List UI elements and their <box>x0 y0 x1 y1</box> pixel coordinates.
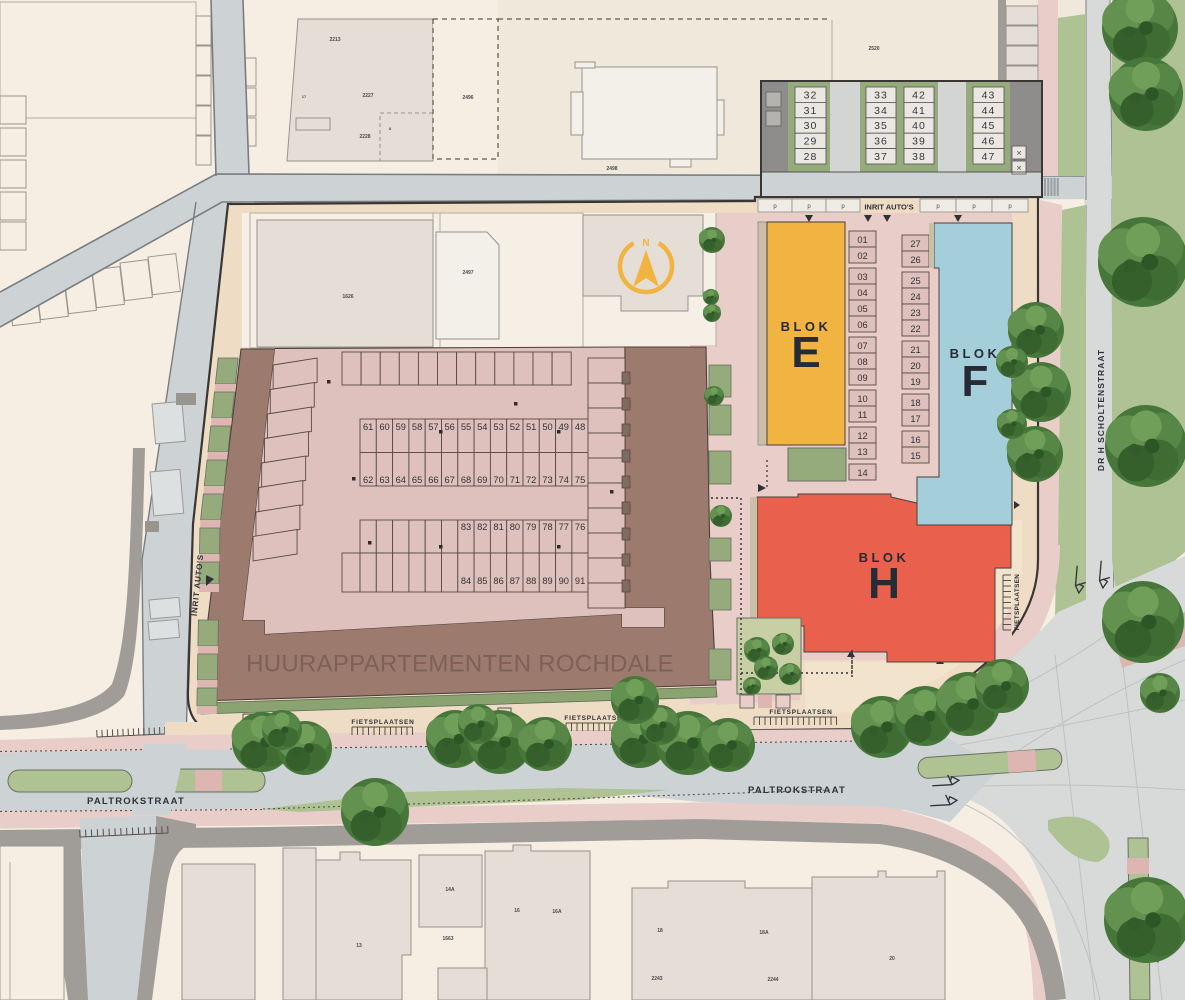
svg-text:16A: 16A <box>552 909 562 915</box>
svg-text:54: 54 <box>477 422 487 432</box>
svg-text:38: 38 <box>912 151 926 163</box>
svg-text:DR H SCHOLTENSTRAAT: DR H SCHOLTENSTRAAT <box>1096 349 1106 471</box>
svg-text:35: 35 <box>874 120 888 132</box>
svg-text:33: 33 <box>874 89 888 101</box>
svg-text:85: 85 <box>477 576 487 586</box>
svg-text:2497: 2497 <box>462 270 473 276</box>
svg-text:2244: 2244 <box>767 977 778 983</box>
svg-text:08: 08 <box>857 357 867 367</box>
svg-text:80: 80 <box>510 522 520 532</box>
svg-text:PALTROKSTRAAT: PALTROKSTRAAT <box>87 796 185 807</box>
svg-text:16: 16 <box>910 435 920 445</box>
svg-text:09: 09 <box>857 373 867 383</box>
svg-text:11: 11 <box>858 410 868 420</box>
svg-text:76: 76 <box>575 522 585 532</box>
svg-text:17: 17 <box>302 94 307 99</box>
svg-text:47: 47 <box>982 151 996 163</box>
svg-text:75: 75 <box>575 475 585 485</box>
svg-text:27: 27 <box>910 239 920 249</box>
svg-text:26: 26 <box>910 255 920 265</box>
svg-text:62: 62 <box>363 475 373 485</box>
svg-text:84: 84 <box>461 576 471 586</box>
svg-text:1626: 1626 <box>342 294 353 300</box>
svg-text:73: 73 <box>542 475 552 485</box>
svg-text:29: 29 <box>804 136 818 148</box>
svg-text:42: 42 <box>912 89 926 101</box>
svg-text:13: 13 <box>356 943 362 949</box>
svg-text:12: 12 <box>857 431 867 441</box>
svg-text:1663: 1663 <box>442 936 453 942</box>
svg-text:72: 72 <box>526 475 536 485</box>
svg-text:41: 41 <box>912 105 926 117</box>
svg-text:23: 23 <box>910 308 920 318</box>
svg-text:34: 34 <box>874 105 888 117</box>
svg-text:91: 91 <box>575 576 585 586</box>
svg-text:56: 56 <box>445 422 455 432</box>
svg-text:86: 86 <box>493 576 503 586</box>
svg-text:45: 45 <box>982 120 996 132</box>
svg-text:2243: 2243 <box>651 976 662 982</box>
svg-text:10: 10 <box>857 394 867 404</box>
svg-text:39: 39 <box>912 136 926 148</box>
svg-text:17: 17 <box>910 414 920 424</box>
svg-text:HUURAPPARTEMENTEN ROCHDALE: HUURAPPARTEMENTEN ROCHDALE <box>246 651 674 678</box>
svg-text:2213: 2213 <box>329 37 340 43</box>
svg-text:05: 05 <box>857 304 867 314</box>
svg-text:90: 90 <box>559 576 569 586</box>
svg-text:21: 21 <box>910 345 920 355</box>
svg-text:43: 43 <box>982 89 996 101</box>
svg-text:87: 87 <box>510 576 520 586</box>
svg-text:79: 79 <box>526 522 536 532</box>
svg-text:2496: 2496 <box>462 95 473 101</box>
svg-text:89: 89 <box>542 576 552 586</box>
svg-text:64: 64 <box>396 475 406 485</box>
svg-text:F: F <box>962 357 989 406</box>
svg-text:24: 24 <box>910 292 920 302</box>
svg-text:61: 61 <box>363 422 373 432</box>
svg-text:2498: 2498 <box>606 166 617 172</box>
svg-text:2228: 2228 <box>359 134 370 140</box>
svg-text:18: 18 <box>910 398 920 408</box>
svg-text:68: 68 <box>461 475 471 485</box>
svg-text:52: 52 <box>510 422 520 432</box>
svg-text:07: 07 <box>857 341 867 351</box>
svg-text:66: 66 <box>428 475 438 485</box>
svg-text:31: 31 <box>804 105 818 117</box>
svg-text:H: H <box>868 559 900 608</box>
svg-text:06: 06 <box>857 320 867 330</box>
svg-text:FIETSPLAATSEN: FIETSPLAATSEN <box>351 719 414 726</box>
svg-text:18: 18 <box>657 928 663 934</box>
svg-text:44: 44 <box>982 105 996 117</box>
svg-text:57: 57 <box>428 422 438 432</box>
svg-text:N: N <box>642 238 649 249</box>
svg-text:81: 81 <box>493 522 503 532</box>
svg-text:PALTROKSTRAAT: PALTROKSTRAAT <box>748 785 846 796</box>
svg-text:FIETSPLAATSEN: FIETSPLAATSEN <box>769 709 832 716</box>
svg-text:32: 32 <box>804 89 818 101</box>
svg-text:15: 15 <box>910 451 920 461</box>
svg-text:16: 16 <box>514 908 520 914</box>
svg-text:22: 22 <box>910 324 920 334</box>
svg-text:2520: 2520 <box>868 46 879 52</box>
svg-text:03: 03 <box>857 272 867 282</box>
svg-text:74: 74 <box>559 475 569 485</box>
svg-text:30: 30 <box>804 120 818 132</box>
svg-text:20: 20 <box>889 956 895 962</box>
svg-text:46: 46 <box>982 136 996 148</box>
svg-text:01: 01 <box>857 235 867 245</box>
svg-text:14: 14 <box>857 468 867 478</box>
svg-text:83: 83 <box>461 522 471 532</box>
svg-text:25: 25 <box>910 276 920 286</box>
svg-text:04: 04 <box>857 288 867 298</box>
svg-text:28: 28 <box>804 151 818 163</box>
svg-text:FIETSPLAATSEN: FIETSPLAATSEN <box>1014 574 1021 631</box>
svg-text:✕: ✕ <box>1016 166 1022 173</box>
svg-text:36: 36 <box>874 136 888 148</box>
svg-text:67: 67 <box>445 475 455 485</box>
svg-text:48: 48 <box>575 422 585 432</box>
svg-text:82: 82 <box>477 522 487 532</box>
svg-text:E: E <box>791 328 820 377</box>
svg-text:02: 02 <box>857 251 867 261</box>
svg-text:53: 53 <box>493 422 503 432</box>
svg-text:40: 40 <box>912 120 926 132</box>
svg-text:63: 63 <box>379 475 389 485</box>
svg-text:2227: 2227 <box>362 93 373 99</box>
svg-text:60: 60 <box>379 422 389 432</box>
svg-text:78: 78 <box>542 522 552 532</box>
svg-text:69: 69 <box>477 475 487 485</box>
svg-text:71: 71 <box>510 475 520 485</box>
svg-text:51: 51 <box>526 422 536 432</box>
svg-text:65: 65 <box>412 475 422 485</box>
svg-text:88: 88 <box>526 576 536 586</box>
svg-text:37: 37 <box>874 151 888 163</box>
svg-text:59: 59 <box>396 422 406 432</box>
svg-text:58: 58 <box>412 422 422 432</box>
svg-text:70: 70 <box>493 475 503 485</box>
svg-text:19: 19 <box>910 377 920 387</box>
svg-text:INRIT AUTO'S: INRIT AUTO'S <box>864 203 913 212</box>
svg-text:77: 77 <box>559 522 569 532</box>
svg-text:55: 55 <box>461 422 471 432</box>
svg-text:✕: ✕ <box>1016 151 1022 158</box>
svg-text:20: 20 <box>910 361 920 371</box>
svg-text:14A: 14A <box>445 887 455 893</box>
svg-text:50: 50 <box>542 422 552 432</box>
svg-text:18A: 18A <box>759 930 769 936</box>
svg-text:13: 13 <box>857 447 867 457</box>
